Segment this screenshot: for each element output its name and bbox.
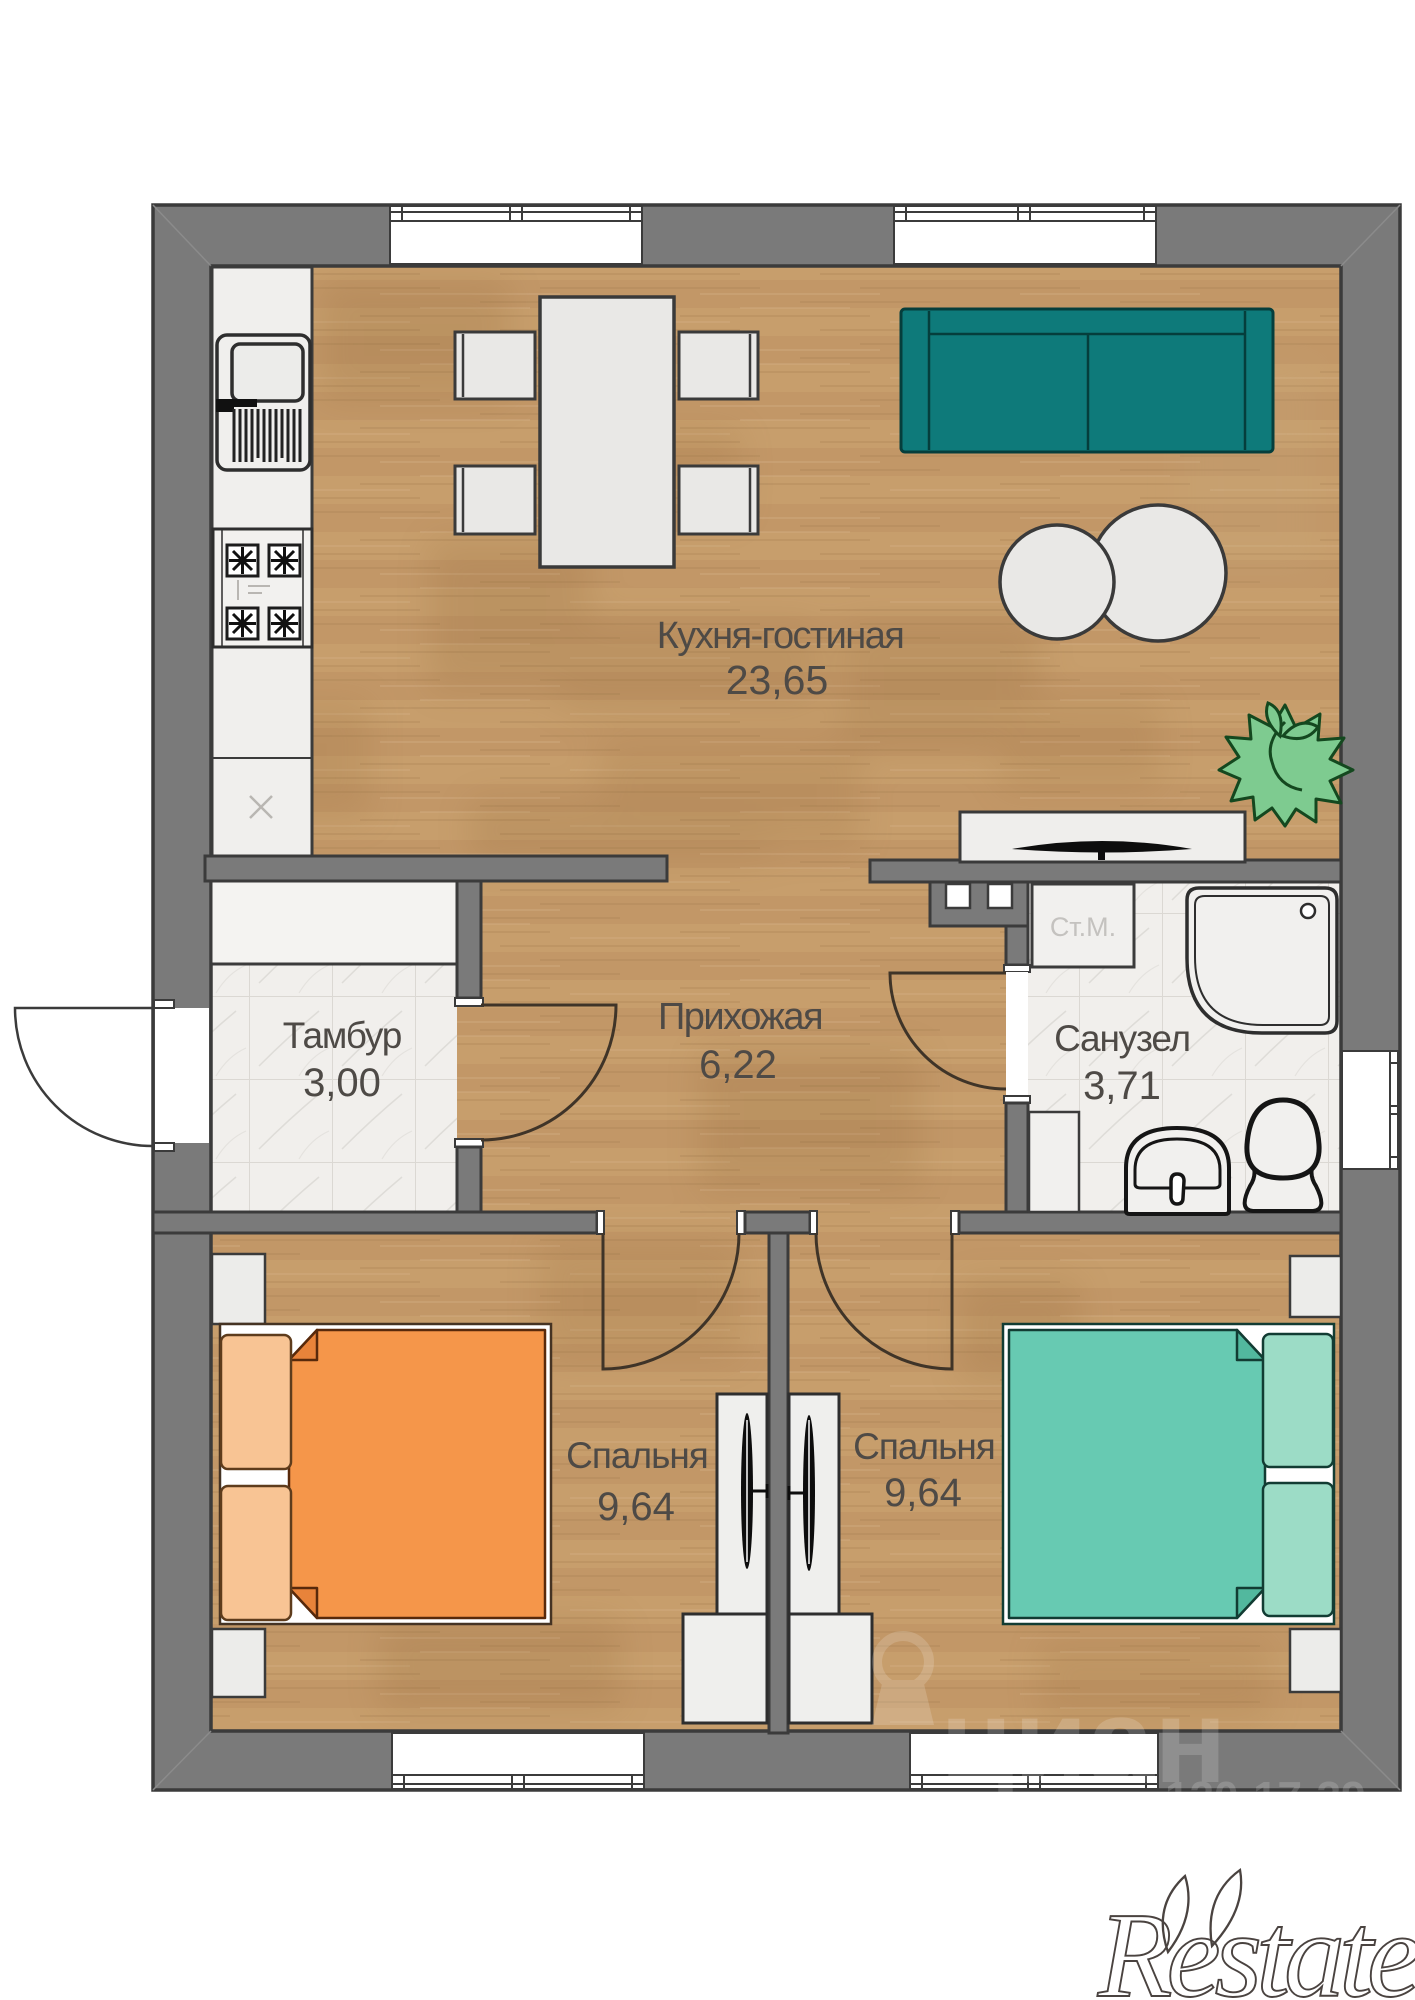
svg-text:Ст.М.: Ст.М. <box>1050 912 1116 942</box>
svg-text:Прихожая: Прихожая <box>658 996 822 1038</box>
svg-text:3,71: 3,71 <box>1083 1064 1161 1108</box>
svg-text:3,00: 3,00 <box>303 1061 381 1105</box>
svg-text:120-17-39: 120-17-39 <box>1165 1773 1366 1822</box>
svg-text:23,65: 23,65 <box>726 657 829 703</box>
svg-text:6,22: 6,22 <box>699 1043 777 1087</box>
svg-text:9,64: 9,64 <box>597 1485 675 1529</box>
svg-text:Кухня-гостиная: Кухня-гостиная <box>657 615 903 657</box>
svg-text:Тамбур: Тамбур <box>283 1015 402 1056</box>
svg-text:Спальня: Спальня <box>566 1435 708 1476</box>
svg-text:Restate: Restate <box>1097 1888 1415 2000</box>
svg-text:Санузел: Санузел <box>1054 1018 1190 1059</box>
svg-text:9,64: 9,64 <box>884 1471 962 1515</box>
svg-text:Спальня: Спальня <box>853 1426 995 1467</box>
